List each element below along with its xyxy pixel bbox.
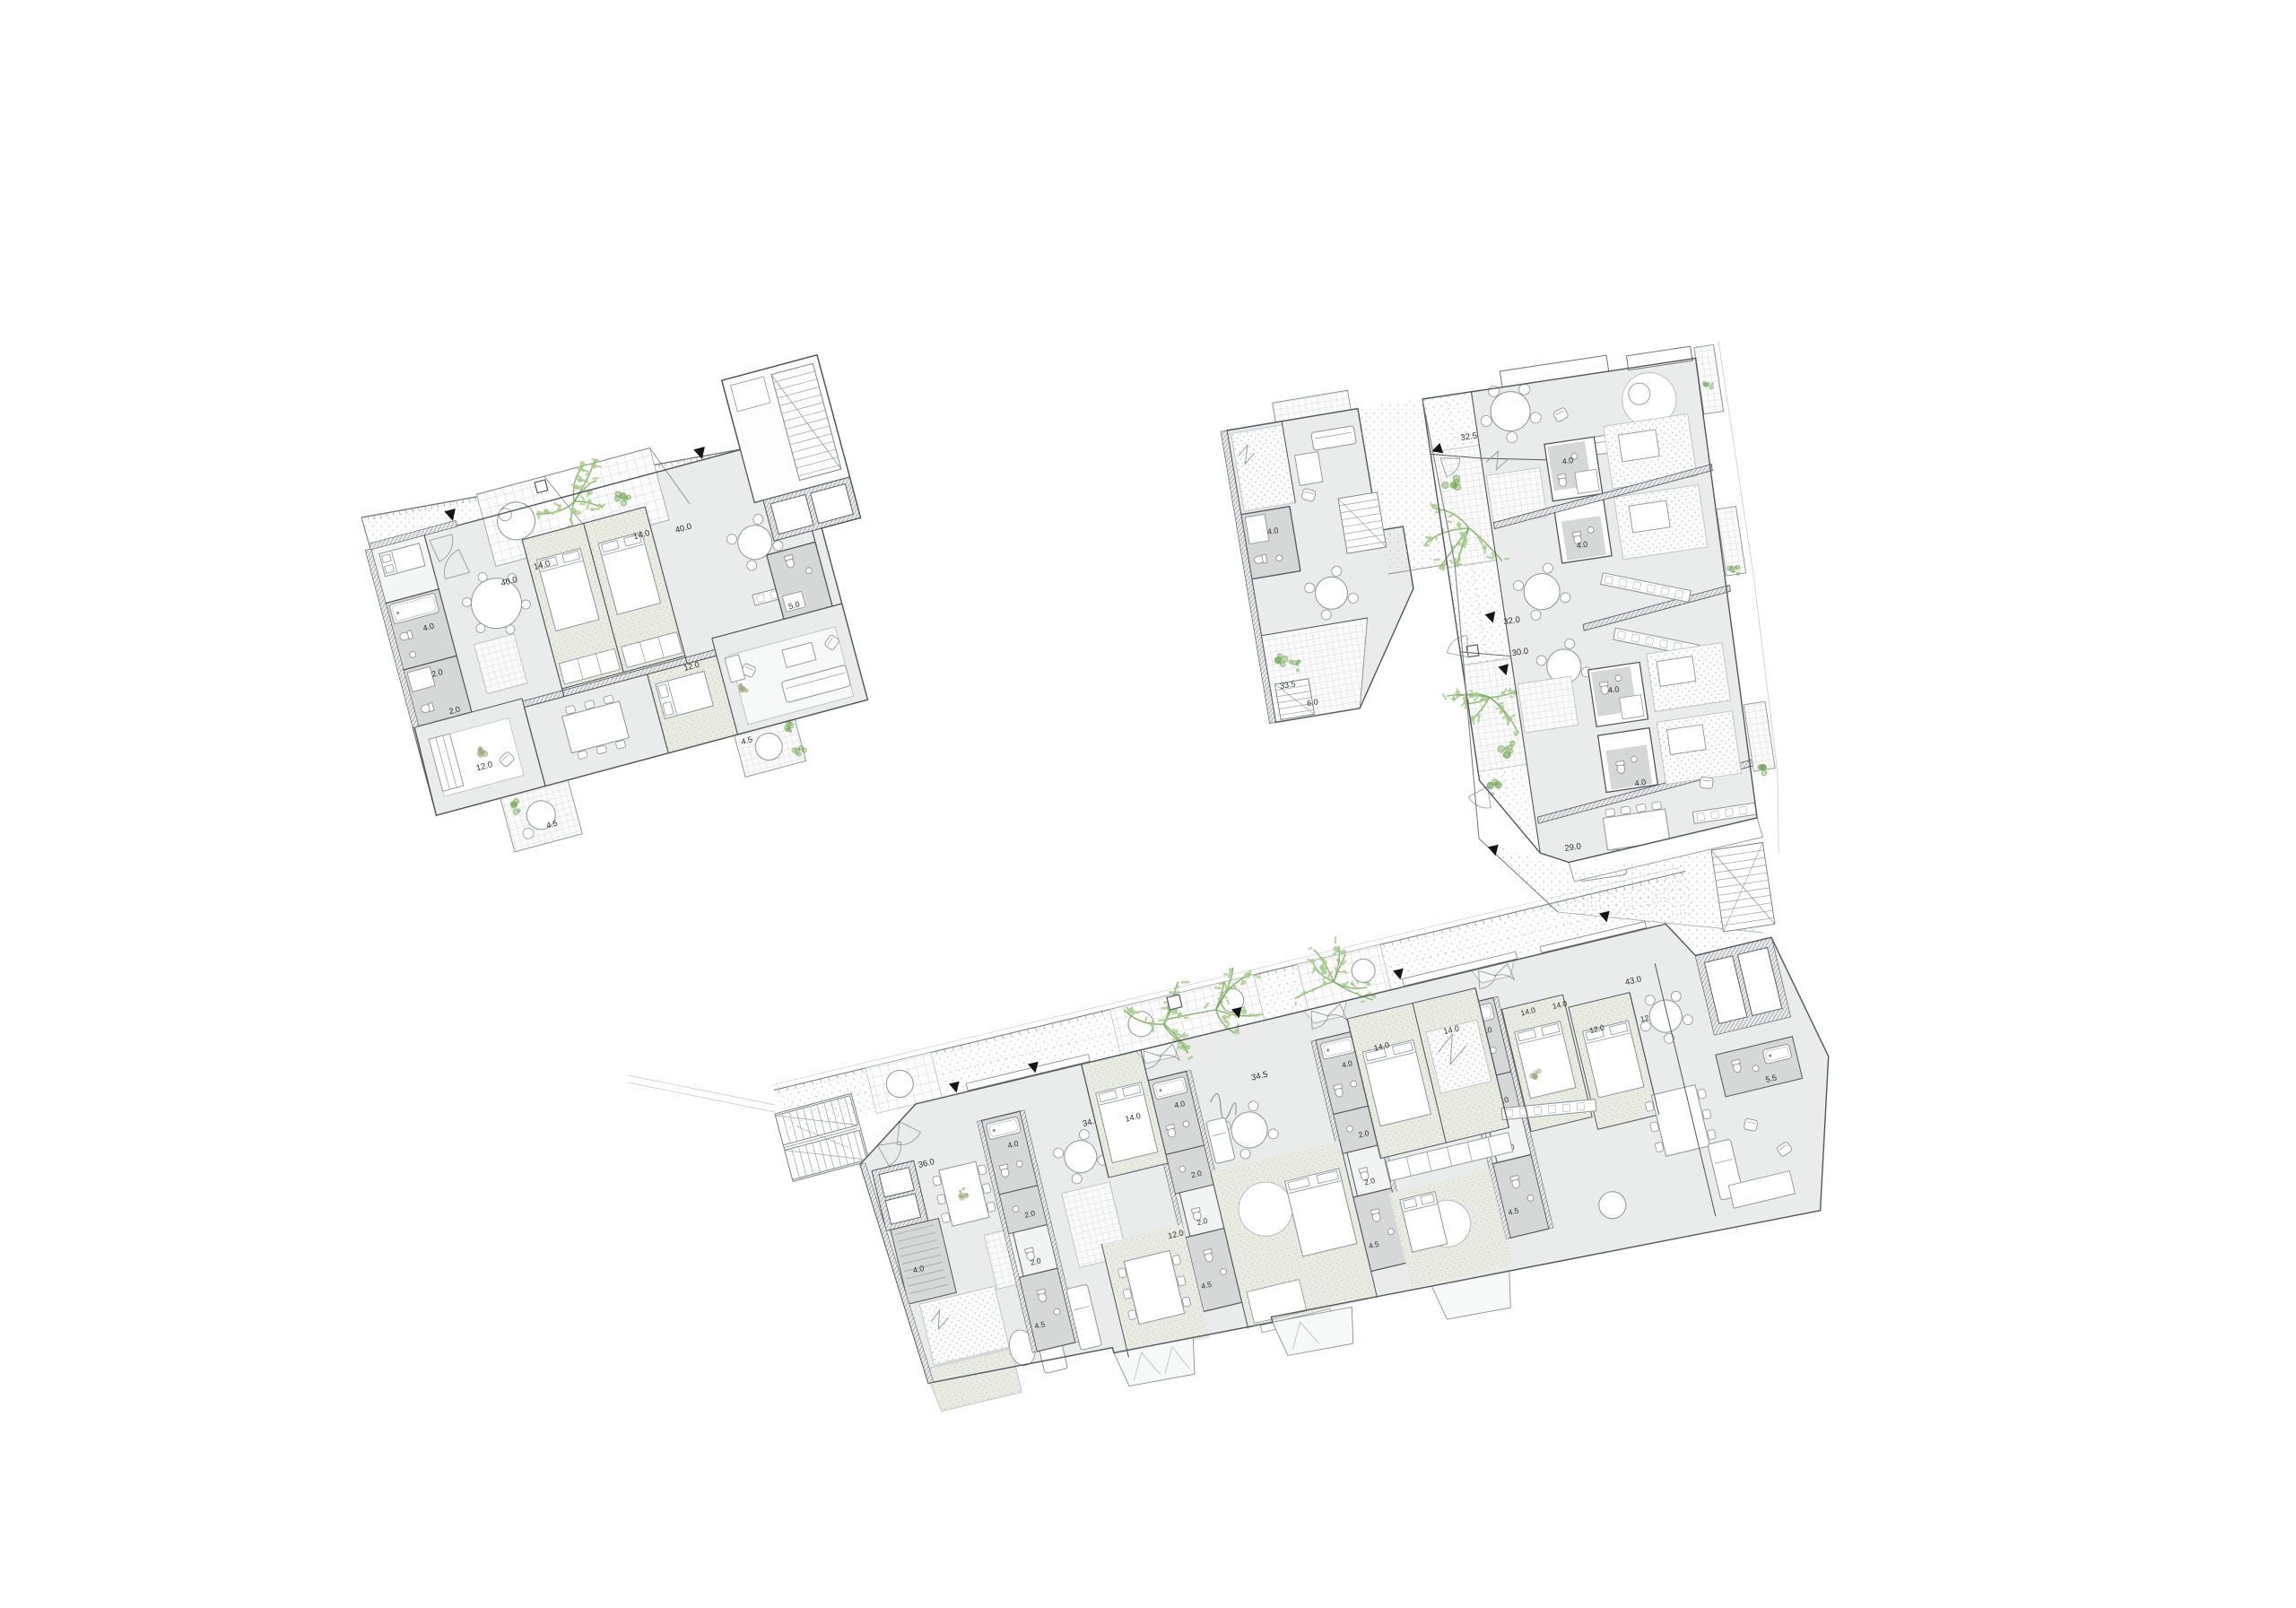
svg-text:4.0: 4.0	[1576, 540, 1588, 551]
svg-text:4.0: 4.0	[1634, 778, 1647, 788]
svg-text:6.0: 6.0	[1306, 697, 1318, 708]
svg-text:4.0: 4.0	[1607, 684, 1620, 695]
svg-text:4.0: 4.0	[1561, 456, 1574, 466]
svg-text:4.0: 4.0	[1266, 526, 1279, 536]
